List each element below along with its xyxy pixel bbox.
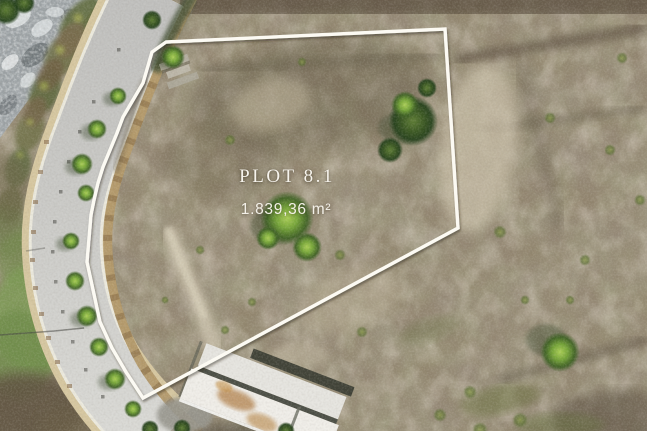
plot-area-label: 1.839,36 m² (241, 201, 331, 219)
plot-label: PLOT 8.1 (239, 166, 335, 188)
plot-aerial-photo: PLOT 8.1 1.839,36 m² (0, 0, 647, 431)
